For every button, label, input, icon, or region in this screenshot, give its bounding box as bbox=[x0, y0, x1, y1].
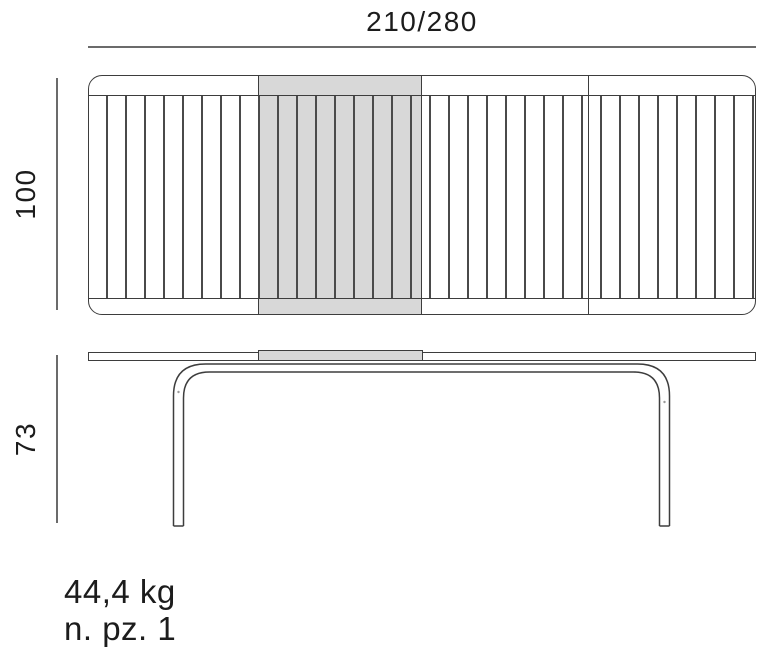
section-divider bbox=[588, 76, 589, 314]
table-dimension-diagram: 210/280 100 73 44,4 kg n. pz. 1 bbox=[0, 0, 768, 650]
slat-area bbox=[89, 95, 755, 299]
extension-leaf-side-profile bbox=[258, 350, 423, 361]
leg-frame-inner-contour bbox=[184, 372, 660, 526]
leg-frame-outer-contour bbox=[174, 364, 670, 526]
leg-screw-mark bbox=[663, 401, 665, 403]
table-top-view bbox=[88, 75, 756, 315]
leg-screw-mark bbox=[177, 391, 179, 393]
